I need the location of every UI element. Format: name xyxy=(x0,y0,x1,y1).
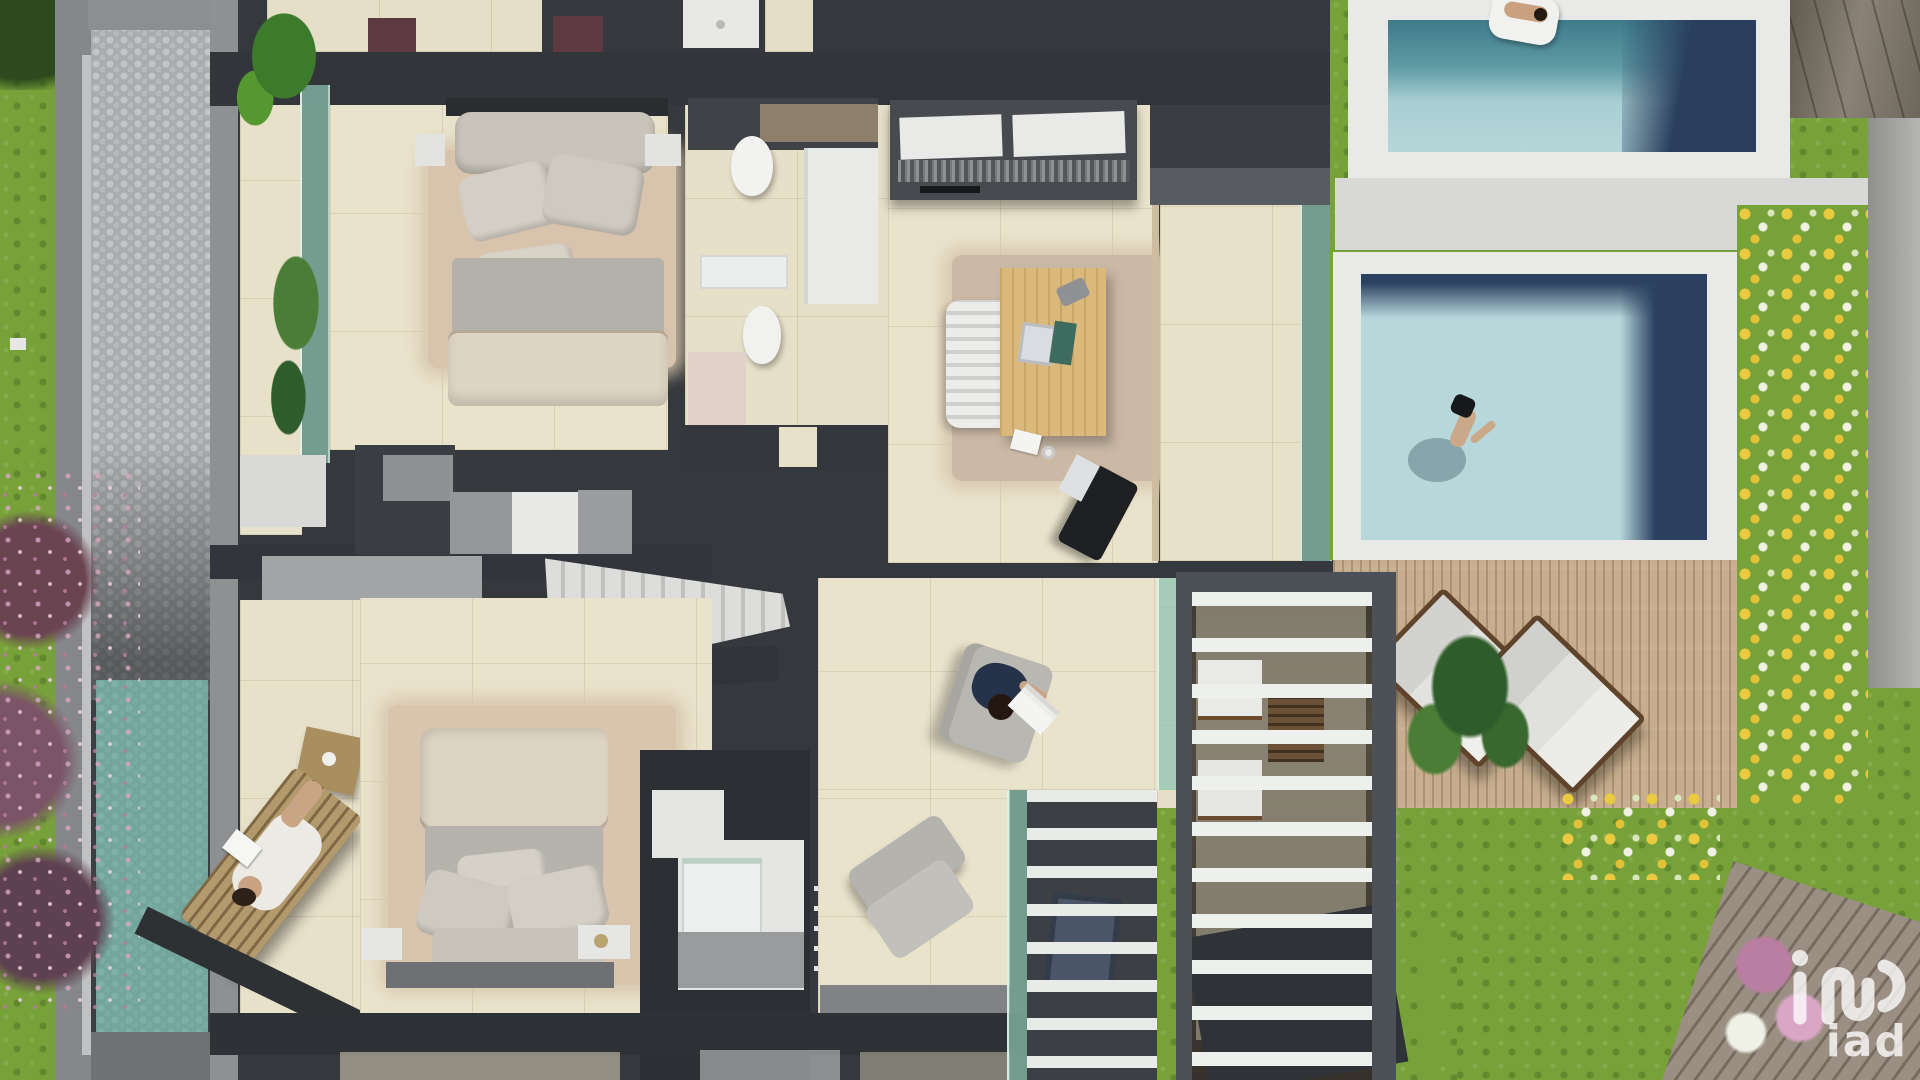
nightstand-lower-left xyxy=(362,928,402,960)
pergola-frame-right xyxy=(1372,572,1396,1080)
terrace-window-mullion xyxy=(1152,205,1159,561)
side-table-cup xyxy=(322,752,336,766)
media-panel-right xyxy=(1012,111,1125,157)
terrace-upper-floor xyxy=(1160,205,1300,561)
dresser-gray-left xyxy=(450,492,512,554)
right-overhang-face xyxy=(1150,168,1345,205)
bathroom-lower-glass xyxy=(682,858,762,863)
bed-upper-blanket xyxy=(448,330,668,406)
flowerbed-small-yellow xyxy=(1560,790,1720,880)
mid-block-face xyxy=(383,455,453,501)
balcony-aloe-plant xyxy=(258,240,334,450)
toilet-second xyxy=(743,306,781,364)
shower-second xyxy=(688,352,746,434)
top-planter-maroon-2 xyxy=(553,16,603,52)
bookshelf-books xyxy=(898,160,1130,182)
balcony-upper-wall-cap xyxy=(240,455,326,527)
office-chair xyxy=(946,300,1006,428)
nightstand-upper-left xyxy=(415,134,445,166)
lap-pool-deep-end xyxy=(1622,20,1756,152)
tv-slot xyxy=(920,186,980,193)
terrace-glass-balustrade xyxy=(1300,205,1332,561)
dresser-white xyxy=(512,492,578,554)
iad-logo-text: iad xyxy=(1826,1020,1908,1064)
veranda-slats xyxy=(1027,790,1157,1080)
pergola-frame-top xyxy=(1176,572,1396,592)
bathroom-upper-counter-wood xyxy=(760,104,878,142)
toilet-upper xyxy=(731,136,773,196)
deckchair-person-hair xyxy=(232,888,256,906)
bathroom-lower-slab xyxy=(678,932,804,988)
balcony-slab-gray xyxy=(262,556,482,602)
lawn-white-object xyxy=(10,338,26,350)
nightstand-lamp xyxy=(594,934,608,948)
pool-float-person-hair xyxy=(1534,8,1547,21)
media-panel-left xyxy=(899,114,1002,160)
bottom-floor-glimpse-1 xyxy=(340,1052,620,1080)
pergola-slats xyxy=(1176,592,1396,1080)
top-planter-maroon-1 xyxy=(368,18,416,52)
pergola-frame-left xyxy=(1176,572,1192,1080)
wall-top-left-block xyxy=(88,0,213,30)
iad-logo: iad xyxy=(1788,948,1914,1068)
top-floor-patch xyxy=(765,0,813,52)
bed-lower-blanket xyxy=(420,728,608,832)
balcony-plant-top xyxy=(236,0,332,140)
bottom-floor-glimpse-2 xyxy=(700,1050,840,1080)
nightstand-upper-right xyxy=(645,134,681,166)
dresser-gray-right xyxy=(578,490,632,554)
shower-upper-glass xyxy=(804,148,808,304)
vanity-upper xyxy=(700,255,788,289)
shower-upper-tray xyxy=(808,148,878,304)
purple-tree-blossom xyxy=(0,470,140,1010)
top-shower-drain-icon xyxy=(716,20,725,29)
main-pool-deep-top xyxy=(1361,274,1707,318)
hall-door-gap xyxy=(779,427,817,467)
bed-lower-bench-mat xyxy=(386,962,614,988)
bottom-floor-glimpse-3 xyxy=(860,1052,1010,1080)
bathroom-lower-vanity xyxy=(682,862,762,940)
villa-render-canvas: iad xyxy=(0,0,1920,1080)
desk-cup xyxy=(1042,446,1055,459)
right-boundary-wall xyxy=(1868,118,1920,688)
flowerbed-right xyxy=(1737,205,1868,815)
spiky-plant xyxy=(1390,592,1550,802)
cobble-bottom-dark xyxy=(91,1032,213,1080)
iad-logo-mark-icon xyxy=(1788,948,1914,1026)
